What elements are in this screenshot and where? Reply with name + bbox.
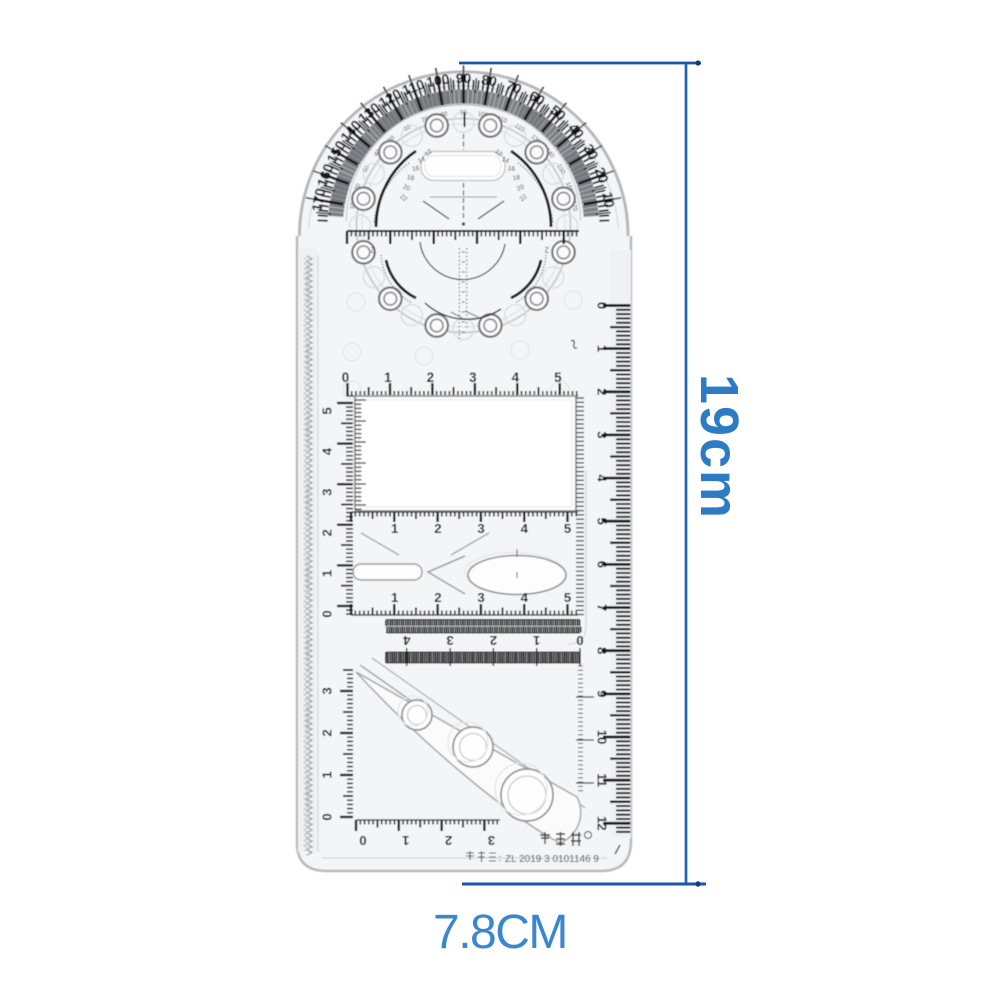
svg-text:12: 12 xyxy=(595,816,610,831)
svg-text:2: 2 xyxy=(544,245,549,254)
svg-text:4: 4 xyxy=(402,633,410,648)
svg-text:2: 2 xyxy=(445,833,452,848)
svg-text:2: 2 xyxy=(370,245,375,254)
svg-text:4: 4 xyxy=(512,370,520,385)
svg-text:1: 1 xyxy=(384,370,392,385)
svg-text:11: 11 xyxy=(595,773,610,787)
svg-text:0: 0 xyxy=(319,610,334,617)
svg-text:80: 80 xyxy=(480,71,498,89)
svg-text:18: 18 xyxy=(407,174,416,182)
svg-text:5: 5 xyxy=(595,518,610,525)
svg-text:5: 5 xyxy=(564,590,571,605)
svg-text:0: 0 xyxy=(595,302,610,309)
svg-text:0: 0 xyxy=(342,370,349,385)
svg-text:2: 2 xyxy=(595,388,610,395)
svg-text:16: 16 xyxy=(507,165,516,173)
svg-text:7: 7 xyxy=(595,604,610,611)
svg-text:3: 3 xyxy=(488,833,495,848)
svg-text:1: 1 xyxy=(391,590,398,605)
svg-text:0: 0 xyxy=(319,813,334,820)
svg-text:1: 1 xyxy=(595,345,610,352)
svg-text:3: 3 xyxy=(477,521,484,536)
svg-text:6: 6 xyxy=(595,561,610,568)
svg-text:16: 16 xyxy=(412,165,421,173)
svg-text:7.8CM: 7.8CM xyxy=(433,906,567,959)
svg-text:3: 3 xyxy=(319,687,334,694)
svg-text:2: 2 xyxy=(434,521,441,536)
svg-text:2: 2 xyxy=(319,729,334,736)
svg-text:0: 0 xyxy=(576,633,583,648)
svg-text:3: 3 xyxy=(446,633,453,648)
svg-text:5: 5 xyxy=(319,407,334,414)
svg-text:19cm: 19cm xyxy=(689,374,749,520)
svg-text:18: 18 xyxy=(512,174,521,182)
svg-text:1: 1 xyxy=(533,633,540,648)
svg-text:3: 3 xyxy=(469,370,476,385)
svg-text:3: 3 xyxy=(595,431,610,438)
svg-text:3: 3 xyxy=(319,489,334,496)
svg-text:ZL 2019 3 0101146 9: ZL 2019 3 0101146 9 xyxy=(505,854,599,865)
svg-text:3: 3 xyxy=(477,590,484,605)
svg-text:90: 90 xyxy=(456,70,472,86)
svg-text:4: 4 xyxy=(521,521,529,536)
svg-text:4: 4 xyxy=(319,447,334,455)
svg-text:10: 10 xyxy=(595,730,610,745)
svg-text:4: 4 xyxy=(595,474,610,482)
svg-text:4: 4 xyxy=(521,590,529,605)
svg-text:0: 0 xyxy=(359,833,366,848)
svg-text:8: 8 xyxy=(595,647,610,654)
svg-text:2: 2 xyxy=(427,370,434,385)
svg-text:1: 1 xyxy=(319,570,334,577)
svg-text:9: 9 xyxy=(595,690,610,697)
svg-text:1: 1 xyxy=(402,833,409,848)
svg-text:1: 1 xyxy=(391,521,398,536)
svg-text:2: 2 xyxy=(490,633,497,648)
svg-text:5: 5 xyxy=(564,521,571,536)
svg-text:2: 2 xyxy=(434,590,441,605)
svg-text:1: 1 xyxy=(319,771,334,778)
svg-text:5: 5 xyxy=(554,370,562,385)
svg-text:10: 10 xyxy=(599,191,617,209)
svg-text:2: 2 xyxy=(319,529,334,536)
